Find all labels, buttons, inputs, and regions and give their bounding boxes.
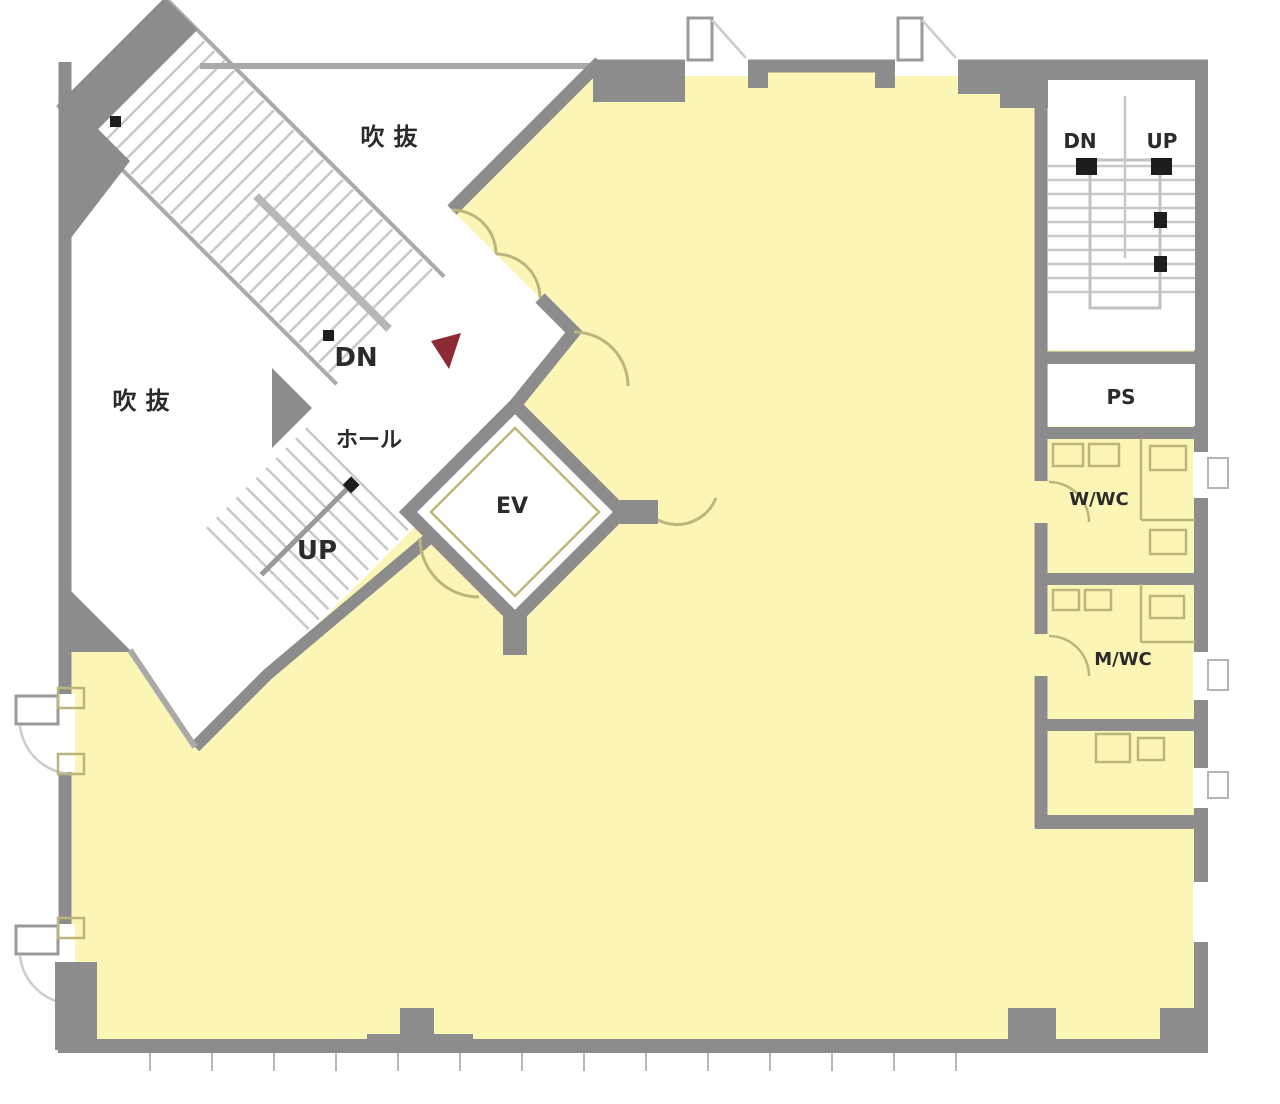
door-leaf — [688, 18, 712, 60]
mens-wc-label: M/WC — [1094, 651, 1152, 669]
stairwell-up-label: UP — [1147, 131, 1178, 151]
stair-dn-dot — [1076, 158, 1097, 175]
ev-east-stub-wall — [620, 500, 658, 524]
door-leaf — [16, 696, 58, 724]
floor-plan: 吹抜 吹抜 DN ホール UP EV DN UP PS W/WC M/WC — [0, 0, 1280, 1104]
void-top-label: 吹抜 — [352, 125, 427, 149]
stairwell-top-wall — [1041, 62, 1208, 80]
door-leaf — [898, 18, 922, 60]
stair-top-dot — [110, 116, 121, 127]
hall-dn-label: DN — [334, 345, 377, 371]
pipe-shaft-label: PS — [1106, 387, 1135, 407]
stair-up-dot — [1151, 158, 1172, 175]
void-left-label: 吹抜 — [104, 389, 179, 413]
door-leaf — [16, 926, 58, 954]
hall-label: ホール — [336, 430, 402, 452]
stair-tick-2 — [1154, 256, 1167, 272]
floor-plan-drawing — [0, 0, 1280, 1104]
ev-south-stub-wall — [503, 617, 527, 655]
window-mullion-ticks — [150, 1053, 956, 1071]
hall-up-label: UP — [297, 538, 337, 564]
elevator-label: EV — [496, 496, 528, 518]
stair-tick-1 — [1154, 212, 1167, 228]
stairwell-dn-label: DN — [1063, 131, 1096, 151]
mwc-door-gap — [1034, 634, 1049, 676]
womens-wc-label: W/WC — [1069, 491, 1129, 509]
hall-dn-dot — [323, 330, 334, 341]
wwc-door-gap — [1034, 481, 1049, 523]
